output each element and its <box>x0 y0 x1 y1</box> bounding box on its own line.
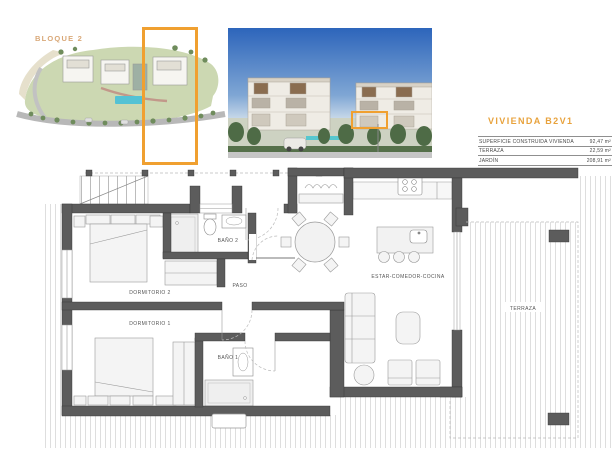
area-row: SUPERFICIE CONSTRUIDA VIVIENDA 92,47 m² <box>478 136 612 146</box>
armchairs <box>388 360 440 385</box>
area-value: 92,47 m² <box>590 139 611 145</box>
entry-bench <box>299 194 343 203</box>
unit-title: VIVIENDA B2V1 <box>488 116 573 126</box>
area-label: SUPERFICIE CONSTRUIDA VIVIENDA <box>479 139 574 145</box>
label-estar-comedor-cocina: ESTAR-COMEDOR-COCINA <box>371 274 444 280</box>
sofa <box>345 293 375 363</box>
stairs <box>80 176 148 204</box>
area-row: TERRAZA 22,59 m² <box>478 146 612 156</box>
street <box>228 152 432 158</box>
label-dormitorio1: DORMITORIO 1 <box>129 321 170 327</box>
building-left <box>248 78 330 130</box>
label-paso: PASO <box>232 283 247 289</box>
floor-lamp <box>354 365 374 385</box>
siteplan-highlight-rect <box>142 27 198 165</box>
dining-table <box>281 212 349 272</box>
area-value: 22,59 m² <box>590 148 611 154</box>
label-dormitorio2: DORMITORIO 2 <box>129 290 170 296</box>
terrace-pillar-bottom <box>548 413 569 425</box>
label-bano1: BAÑO 1 <box>218 354 239 361</box>
bed-dormitorio2 <box>74 215 163 282</box>
kitchen-island <box>377 227 433 263</box>
hedge <box>228 146 432 152</box>
area-label: TERRAZA <box>479 148 504 154</box>
block-label: BLOQUE 2 <box>35 34 83 43</box>
coat-hooks-symbol <box>305 185 337 189</box>
terrace-pillar-top <box>549 230 569 242</box>
bed-dormitorio1 <box>74 338 176 405</box>
kitchen-counter <box>353 176 452 199</box>
brochure-page: BLOQUE 2 <box>0 0 615 454</box>
floorplan: DORMITORIO 2 DORMITORIO 1 BAÑO 2 BAÑO 1 … <box>0 160 615 454</box>
label-terraza: TERRAZA <box>510 306 536 312</box>
pool <box>115 96 143 104</box>
exterior-step <box>212 414 246 428</box>
coffee-table <box>396 312 420 344</box>
label-bano2: BAÑO 2 <box>218 237 239 244</box>
elevation-highlight-rect <box>351 111 388 129</box>
bathroom2-fixtures <box>168 214 246 258</box>
elevation-render-image <box>228 28 432 158</box>
